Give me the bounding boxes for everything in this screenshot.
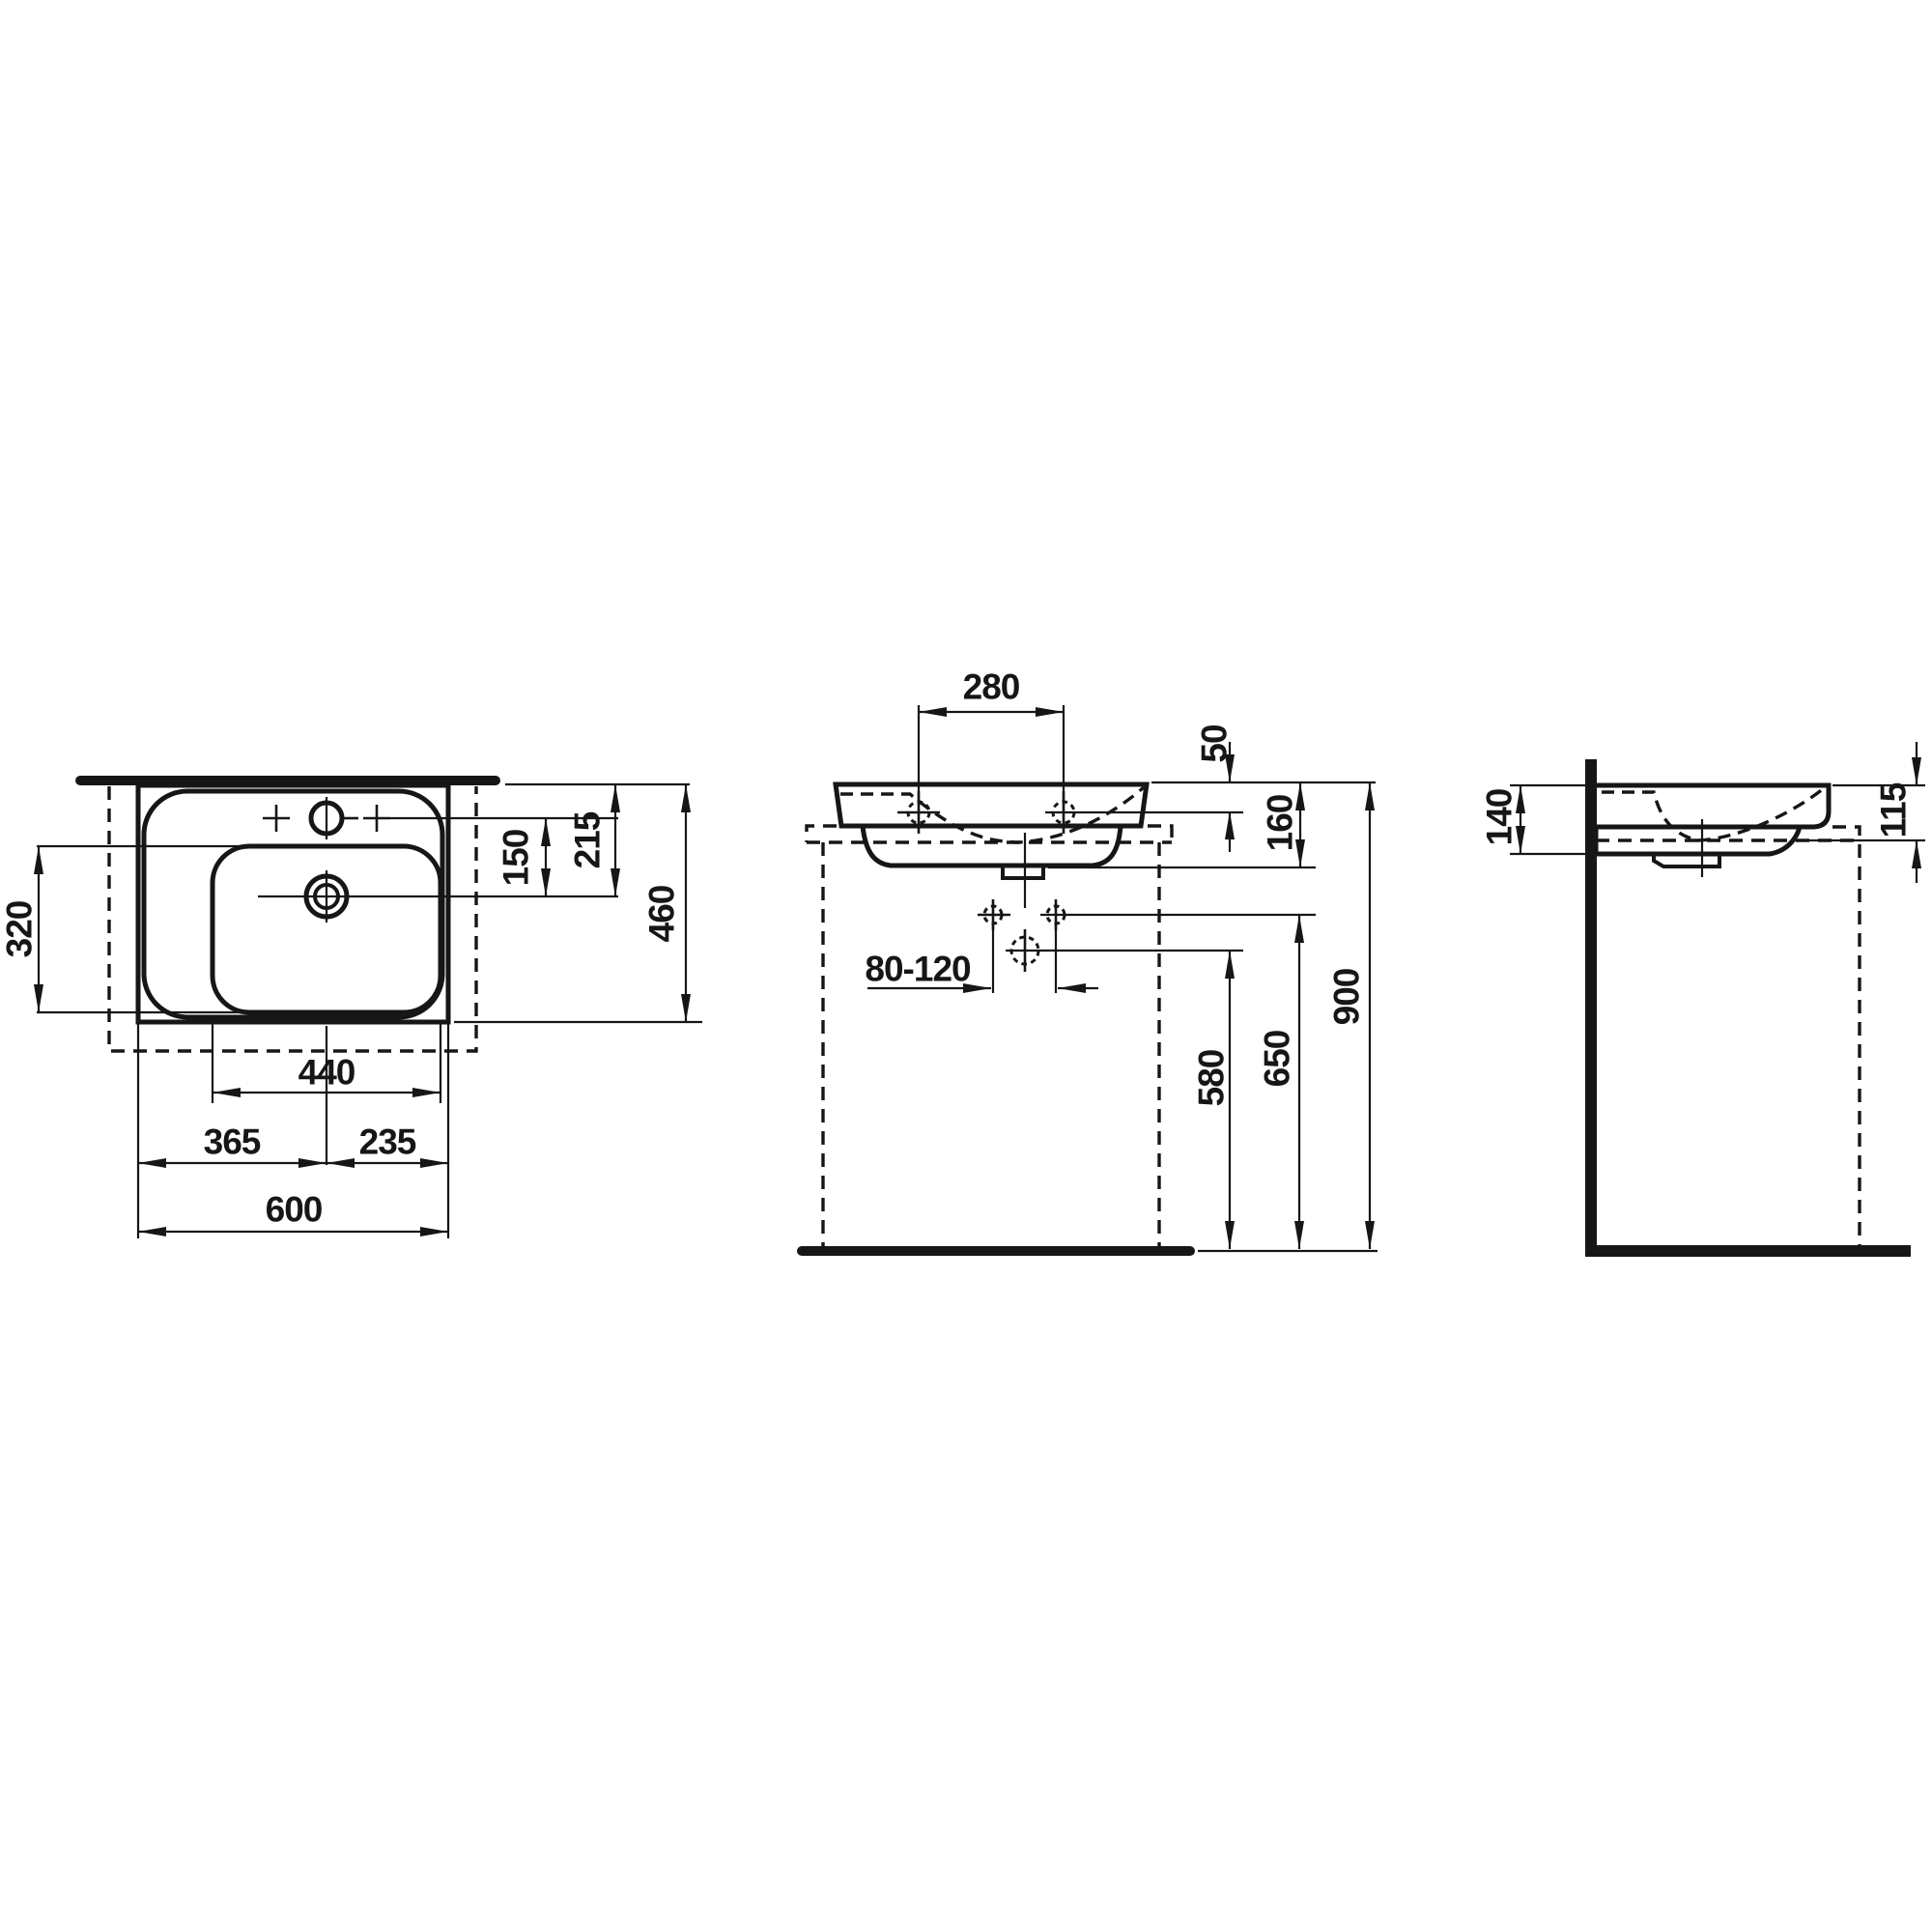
dim-label-drain-from-right: 235 [359, 1122, 416, 1162]
washbasin-dimension-drawing: 600 365 235 440 320 150 215 460 280 50 1… [0, 0, 1932, 1932]
dim-label-tap-to-drain: 150 [497, 829, 536, 886]
dim-label-drain-offset-range: 80-120 [865, 950, 971, 989]
tap-hole-group [263, 797, 390, 839]
front-bowl-outline [863, 826, 1121, 866]
dim-label-rim-to-drain: 215 [568, 811, 608, 868]
front-cabinet-dashed-outline [807, 826, 1172, 1249]
dim-label-basin-height: 160 [1261, 794, 1300, 851]
dim-label-wall-side-height: 140 [1480, 788, 1520, 845]
dim-label-drain-from-left: 365 [204, 1122, 261, 1162]
side-view [1510, 742, 1925, 1255]
dim-label-drain-height: 580 [1192, 1049, 1232, 1106]
dim-label-rim-height: 900 [1327, 968, 1367, 1025]
sink-outline [138, 785, 448, 1022]
dim-label-front-edge-height: 115 [1874, 782, 1914, 838]
drawing-root [37, 705, 1925, 1255]
side-cabinet-dashed-outline [1596, 827, 1860, 1248]
front-basin-hidden-line [840, 787, 1144, 842]
dim-label-overall-width: 600 [266, 1190, 323, 1230]
rim-outline [144, 791, 442, 1017]
side-extension-lines [1510, 785, 1925, 854]
dim-label-basin-depth: 320 [0, 900, 40, 957]
optional-tap-hole-left-cross [263, 805, 290, 832]
dim-label-fixing-hole-spacing: 280 [963, 668, 1020, 707]
side-basin-hidden-line [1602, 788, 1824, 840]
dim-label-rim-to-fixing-holes: 50 [1195, 724, 1235, 763]
dim-label-connection-height: 650 [1258, 1030, 1297, 1087]
optional-tap-hole-right-cross [363, 805, 390, 832]
dim-label-overall-depth: 460 [642, 885, 682, 942]
dim-label-basin-width: 440 [298, 1053, 355, 1093]
dimension-labels: 600 365 235 440 320 150 215 460 280 50 1… [0, 668, 1914, 1230]
